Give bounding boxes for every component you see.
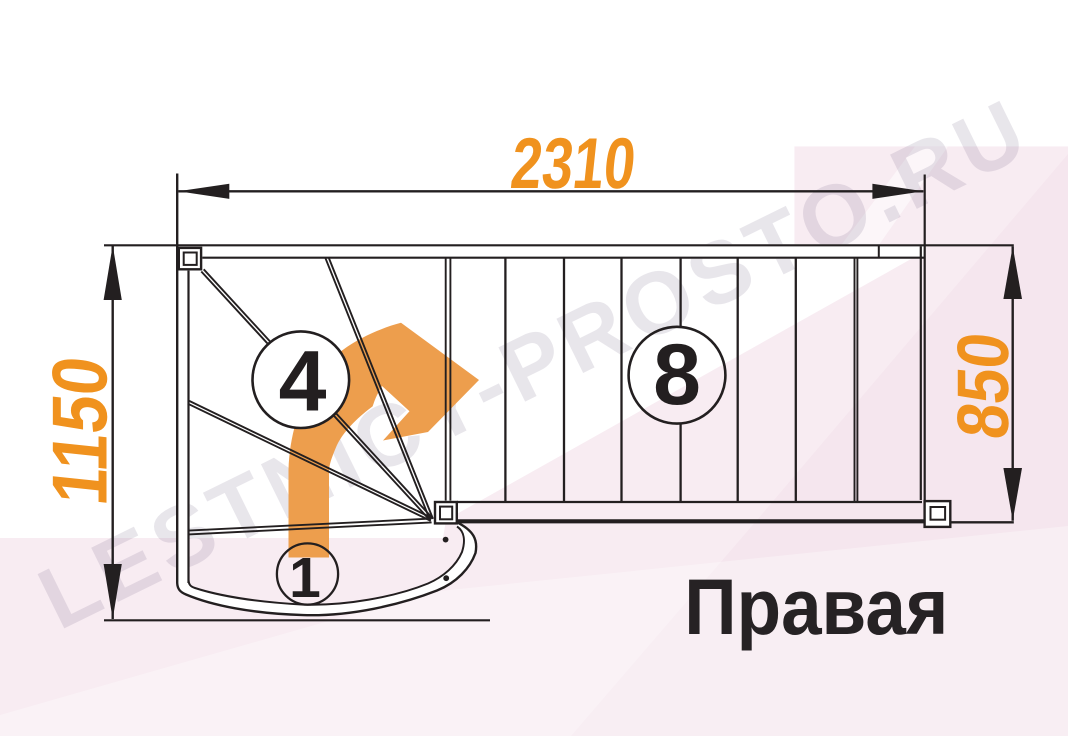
svg-text:8: 8	[653, 327, 701, 423]
svg-text:850: 850	[942, 329, 1024, 443]
svg-text:1: 1	[289, 546, 321, 610]
svg-text:2310: 2310	[507, 124, 639, 204]
svg-text:Правая: Правая	[684, 562, 948, 651]
svg-text:4: 4	[279, 334, 327, 430]
svg-text:1150: 1150	[35, 353, 123, 509]
